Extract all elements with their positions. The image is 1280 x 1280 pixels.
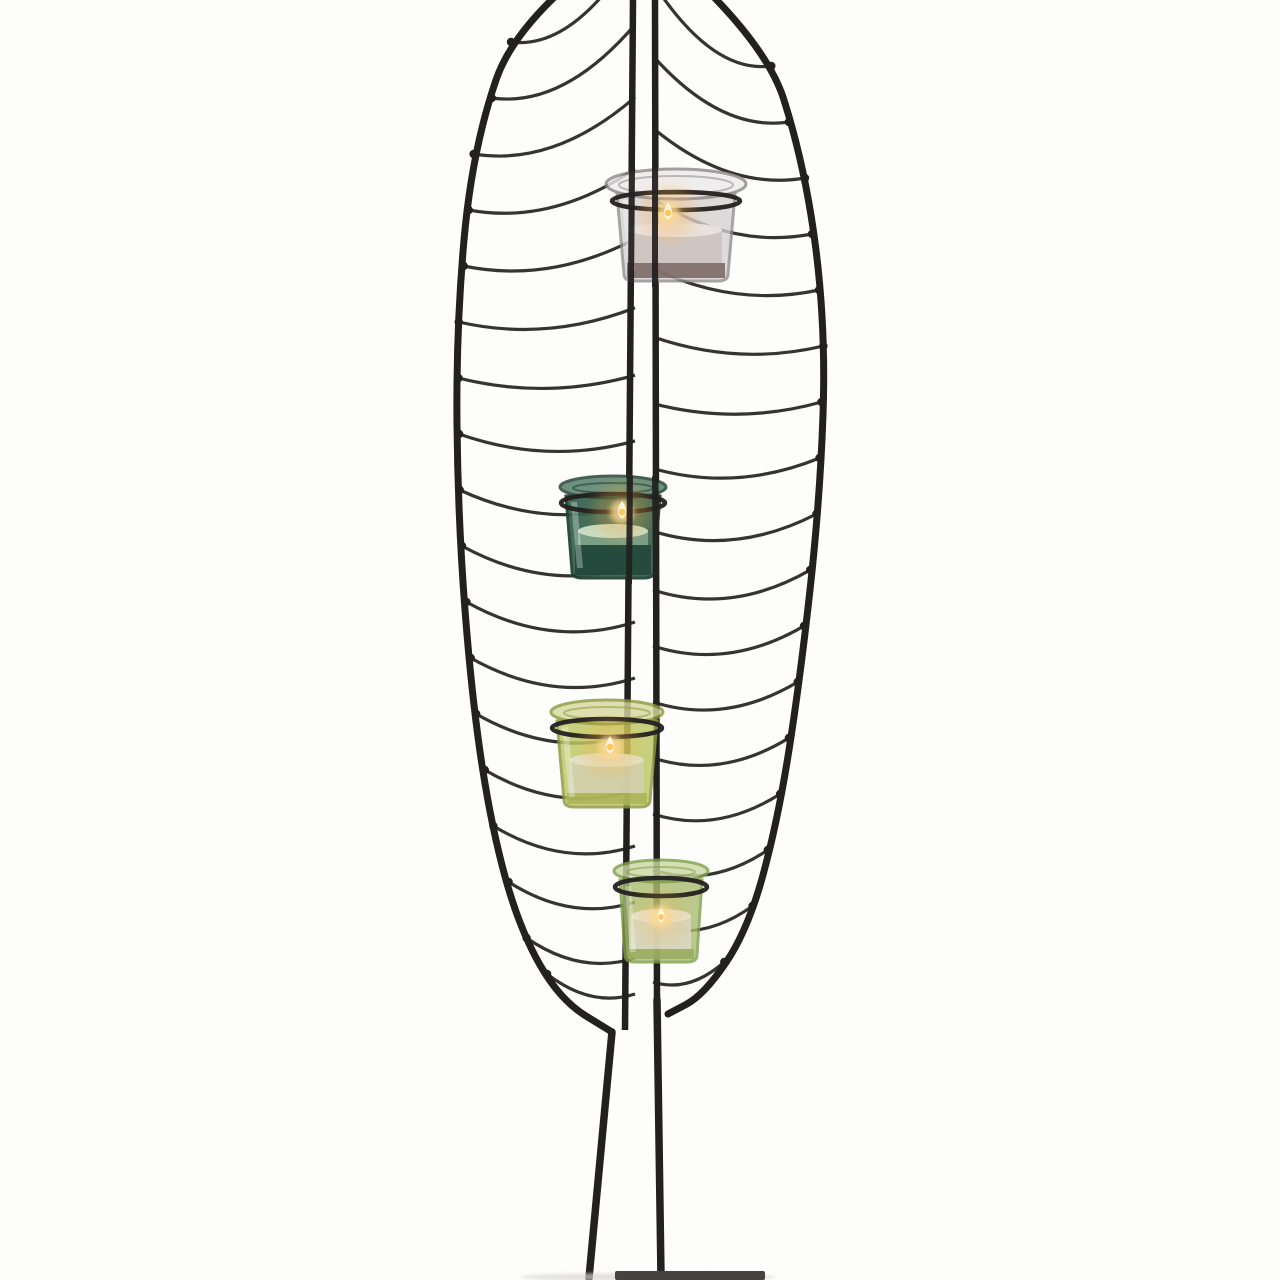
rib-wire <box>459 308 635 330</box>
rib-wire <box>492 25 635 99</box>
rib-wire <box>653 0 771 67</box>
flame-core <box>658 914 664 920</box>
votive-glass-bottom <box>567 793 647 804</box>
leaf-candle-holder-illustration <box>0 0 1280 1280</box>
rib-wire <box>653 402 822 414</box>
votive-glass-bottom <box>627 263 725 278</box>
rib-wire <box>466 602 635 632</box>
flame-core <box>607 744 614 751</box>
rib-wire <box>471 658 635 688</box>
flame-core <box>665 210 672 217</box>
base-plate <box>615 1271 765 1280</box>
rib-wire <box>653 570 810 599</box>
flame-core <box>619 509 626 516</box>
rib-wire <box>474 97 635 156</box>
base <box>520 1271 776 1280</box>
votive-olive-green-glass-votive <box>551 700 663 807</box>
votive-glass-bottom <box>628 949 694 959</box>
stem-wire-front-segment <box>655 476 656 584</box>
votives <box>551 169 746 962</box>
votive-clear-glass-votive <box>606 169 746 281</box>
stem-wire-front-segment <box>629 476 630 584</box>
votive-light-green-glass-votive <box>614 860 708 962</box>
rib-wire <box>459 434 635 451</box>
rib-wire <box>464 239 635 271</box>
rib-wire <box>469 169 635 213</box>
rib-wire <box>653 794 780 821</box>
right-leg-wire <box>657 1000 661 1277</box>
stem-wire-front-segment <box>631 166 632 287</box>
rib-wire <box>653 626 804 655</box>
rib-wire <box>653 514 816 541</box>
votive-glass-bottom <box>575 545 651 575</box>
product-photo <box>0 0 1280 1280</box>
rib-wire <box>653 458 820 478</box>
rib-wire <box>653 682 798 710</box>
rib-wire <box>653 337 823 354</box>
left-leg-wire <box>589 1032 612 1278</box>
rib-wire <box>527 938 635 963</box>
rib-wire <box>653 738 789 765</box>
rib-wire <box>493 826 635 854</box>
rib-wire <box>459 375 636 388</box>
votive-dark-green-glass-votive <box>560 476 666 578</box>
